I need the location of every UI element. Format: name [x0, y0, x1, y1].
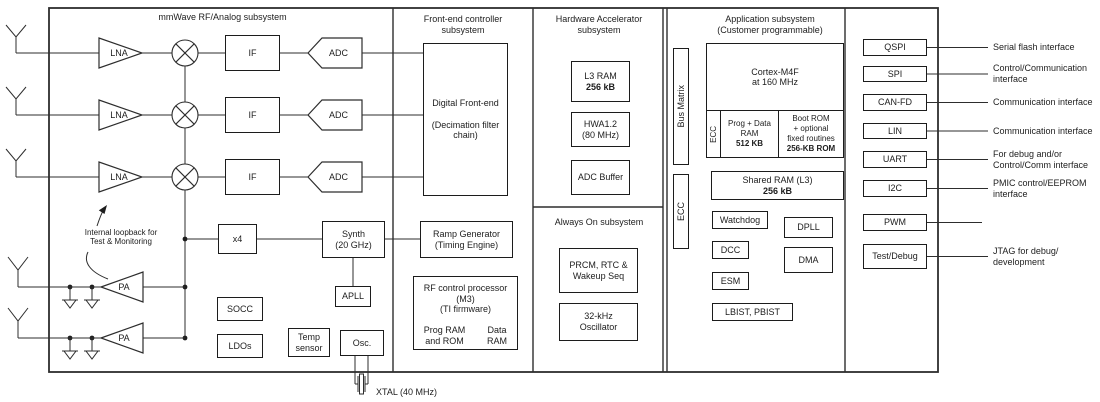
- esm-box: ESM: [712, 272, 749, 290]
- ldos-box: LDOs: [217, 334, 263, 358]
- digital-frontend-box: Digital Front-end (Decimation filter cha…: [423, 43, 508, 196]
- pa-lines: [18, 287, 185, 338]
- hwa-section-title: Hardware Accelerator subsystem: [540, 14, 658, 37]
- dcc-box: DCC: [712, 241, 749, 259]
- dpll-box: DPLL: [784, 217, 833, 238]
- adc3-label: ADC: [315, 172, 362, 183]
- test-debug-box: Test/Debug: [863, 244, 927, 269]
- termination-icon: [62, 287, 100, 359]
- i2c-note: PMIC control/EEPROM interface: [993, 178, 1099, 200]
- watchdog-box: Watchdog: [712, 211, 768, 229]
- l3-ram-size: 256 kB: [586, 82, 615, 93]
- adc2-label: ADC: [315, 110, 362, 121]
- spi-note: Control/Communication interface: [993, 63, 1099, 85]
- boot-rom-cell: Boot ROM + optional fixed routines 256-K…: [779, 111, 843, 157]
- i2c-box: I2C: [863, 180, 927, 197]
- osc-box: Osc.: [340, 330, 384, 356]
- shared-ram-size: 256 kB: [763, 186, 792, 197]
- lin-box: LIN: [863, 123, 927, 139]
- prog-data-ram-name: Prog + Data RAM: [728, 119, 771, 139]
- ramp-generator-box: Ramp Generator (Timing Engine): [420, 221, 513, 258]
- cortex-cluster-box: Cortex-M4F at 160 MHz ECC Prog + Data RA…: [706, 43, 844, 158]
- tx-antenna-icon: [8, 257, 28, 338]
- qspi-box: QSPI: [863, 39, 927, 56]
- alwayson-section-title: Always On subsystem: [540, 217, 658, 228]
- ecc-cell: ECC: [707, 111, 721, 157]
- cortex-m4f-box: Cortex-M4F at 160 MHz: [707, 44, 843, 111]
- xtal-crystal-icon: [355, 356, 368, 394]
- lna2-label: LNA: [102, 110, 136, 121]
- lna1-label: LNA: [102, 48, 136, 59]
- pwm-box: PWM: [863, 214, 927, 231]
- socc-box: SOCC: [217, 297, 263, 321]
- uart-box: UART: [863, 151, 927, 168]
- pa2-label: PA: [108, 333, 140, 344]
- if-box-2: IF: [225, 97, 280, 133]
- shared-ram-box: Shared RAM (L3) 256 kB: [711, 171, 844, 200]
- ecc-side-box: ECC: [673, 174, 689, 249]
- pa1-label: PA: [108, 282, 140, 293]
- temp-sensor-box: Temp sensor: [288, 328, 330, 357]
- synth-box: Synth (20 GHz): [322, 221, 385, 258]
- can-fd-note: Communication interface: [993, 97, 1099, 108]
- boot-rom-name: Boot ROM + optional fixed routines: [787, 114, 835, 144]
- if-box-1: IF: [225, 35, 280, 71]
- frontend-section-title: Front-end controller subsystem: [398, 14, 528, 37]
- prog-data-ram-size: 512 KB: [736, 139, 763, 149]
- can-fd-box: CAN-FD: [863, 94, 927, 111]
- rx-antenna-icon: [6, 25, 26, 177]
- x4-multiplier-box: x4: [218, 224, 257, 254]
- hwa-box: HWA1.2 (80 MHz): [571, 112, 630, 147]
- osc-32khz-box: 32-kHz Oscillator: [559, 303, 638, 341]
- spi-box: SPI: [863, 66, 927, 82]
- ecc-side-label: ECC: [676, 202, 687, 221]
- lin-note: Communication interface: [993, 126, 1099, 137]
- adc-buffer-box: ADC Buffer: [571, 160, 630, 195]
- boot-rom-size: 256-KB ROM: [787, 144, 835, 154]
- uart-note: For debug and/or Control/Comm interface: [993, 149, 1099, 171]
- mixer-icon: [172, 40, 198, 190]
- prcm-rtc-wakeup-box: PRCM, RTC & Wakeup Seq: [559, 248, 638, 293]
- soc-block-diagram: mmWave RF/Analog subsystem LNA LNA LNA I…: [0, 0, 1100, 402]
- prog-ram-rom-cell: Prog RAM and ROM: [415, 325, 474, 346]
- bus-matrix-label: Bus Matrix: [676, 85, 687, 128]
- data-ram-cell: Data RAM: [478, 325, 516, 346]
- if-box-3: IF: [225, 159, 280, 195]
- app-section-title: Application subsystem (Customer programm…: [690, 14, 850, 37]
- l3-ram-name: L3 RAM: [584, 71, 617, 82]
- test-debug-note: JTAG for debug/ development: [993, 246, 1099, 268]
- shared-ram-name: Shared RAM (L3): [742, 175, 812, 186]
- lbist-pbist-box: LBIST, PBIST: [712, 303, 793, 321]
- ecc-cell-label: ECC: [709, 126, 718, 143]
- xtal-label: XTAL (40 MHz): [376, 387, 456, 398]
- apll-box: APLL: [335, 286, 371, 307]
- loopback-note: Internal loopback for Test & Monitoring: [75, 228, 167, 247]
- lna3-label: LNA: [102, 172, 136, 183]
- mmwave-section-title: mmWave RF/Analog subsystem: [120, 12, 325, 23]
- prog-data-ram-cell: Prog + Data RAM 512 KB: [721, 111, 779, 157]
- diagram-canvas: [0, 0, 1100, 402]
- l3-ram-box: L3 RAM 256 kB: [571, 61, 630, 102]
- qspi-note: Serial flash interface: [993, 42, 1099, 53]
- adc1-label: ADC: [315, 48, 362, 59]
- interface-leader-lines: [927, 48, 988, 257]
- dma-box: DMA: [784, 247, 833, 273]
- bus-matrix-box: Bus Matrix: [673, 48, 689, 165]
